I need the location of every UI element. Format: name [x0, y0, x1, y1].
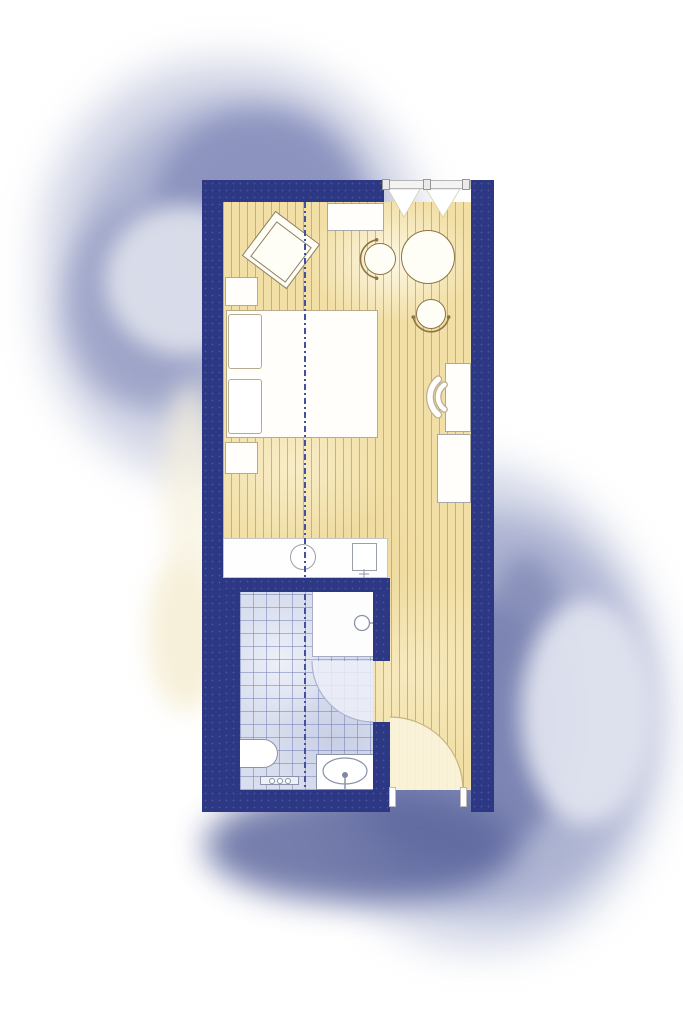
wall-corridor-lower	[373, 722, 390, 790]
towel-rail	[260, 776, 299, 785]
amenity-box	[352, 543, 377, 571]
toilet	[240, 739, 278, 768]
window-mullion	[382, 179, 390, 190]
wall-bathroom-left	[223, 578, 240, 790]
entry-door-jamb-left	[389, 787, 396, 807]
wall-right	[471, 180, 494, 812]
wall-interior	[223, 578, 390, 592]
shower-stall	[312, 592, 373, 657]
pillow	[228, 379, 262, 434]
entry-door-jamb-right	[460, 787, 467, 807]
wall-corridor-upper	[373, 592, 390, 661]
dining-chair-bottom	[416, 299, 446, 329]
window-mullion	[462, 179, 470, 190]
dining-chair-left	[364, 243, 396, 275]
wall-top	[202, 180, 384, 202]
wall-left	[202, 180, 223, 812]
desk	[445, 363, 471, 432]
wall-bottom	[202, 790, 390, 812]
window-mullion	[423, 179, 431, 190]
round-table	[401, 230, 455, 284]
watercolor-blob-upper-left	[66, 205, 216, 405]
countertop-basin	[290, 544, 316, 570]
watercolor-blob-lower-core	[520, 600, 655, 825]
nightstand-bottom	[225, 442, 258, 474]
nightstand-top	[225, 277, 258, 306]
washbasin-unit	[316, 754, 373, 790]
pillow	[228, 314, 262, 369]
section-centerline	[304, 202, 306, 790]
cabinet	[437, 434, 471, 503]
floor-plan-canvas	[0, 0, 683, 1024]
console-shelf	[327, 203, 384, 231]
